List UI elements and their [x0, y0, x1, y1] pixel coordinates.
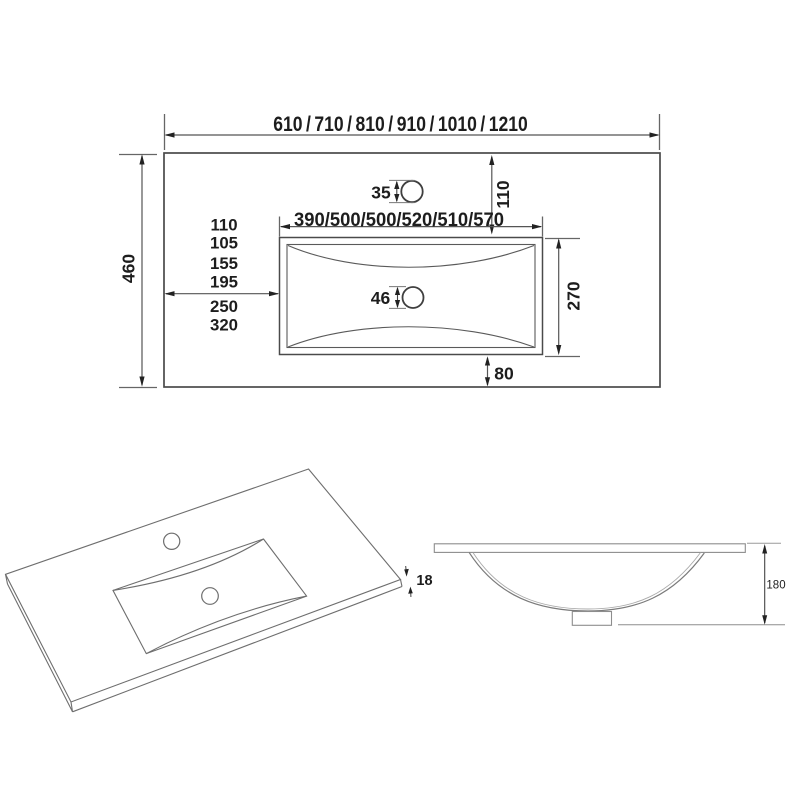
svg-text:460: 460 — [119, 254, 139, 283]
svg-text:390/500/500/520/510/570: 390/500/500/520/510/570 — [294, 210, 504, 231]
svg-text:250: 250 — [210, 297, 238, 316]
svg-text:155: 155 — [210, 254, 238, 273]
svg-text:320: 320 — [210, 316, 238, 335]
svg-text:195: 195 — [210, 273, 238, 292]
svg-text:270: 270 — [564, 281, 584, 310]
svg-text:110: 110 — [210, 216, 237, 235]
svg-text:80: 80 — [494, 364, 514, 384]
svg-text:105: 105 — [210, 234, 238, 253]
svg-text:35: 35 — [371, 183, 391, 203]
svg-text:18: 18 — [416, 573, 432, 589]
svg-text:180: 180 — [766, 580, 785, 592]
svg-text:46: 46 — [371, 288, 391, 308]
svg-text:610 / 710 / 810 / 910 / 1010 /: 610 / 710 / 810 / 910 / 1010 / 1210 — [273, 112, 528, 136]
svg-text:110: 110 — [493, 180, 513, 208]
